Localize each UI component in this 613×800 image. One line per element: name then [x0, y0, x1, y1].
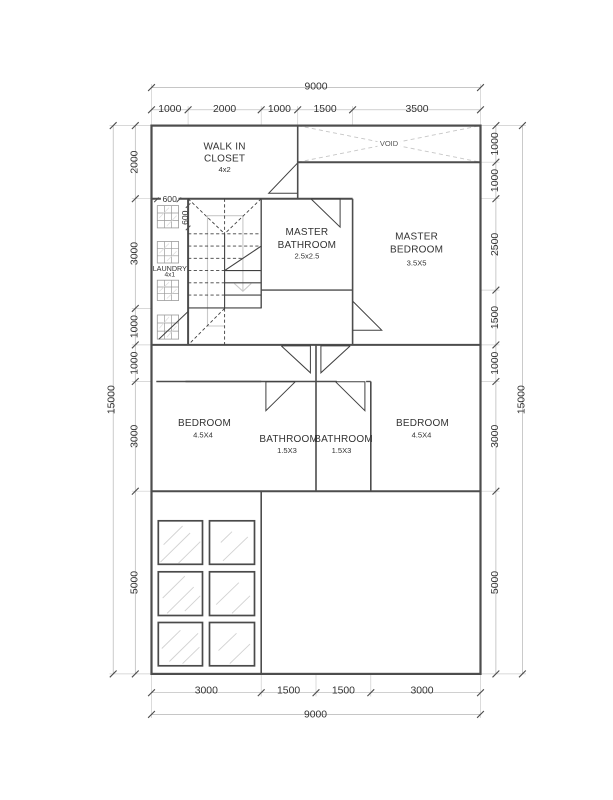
- svg-text:1.5X3: 1.5X3: [277, 446, 297, 455]
- svg-text:3000: 3000: [410, 686, 433, 697]
- svg-text:15000: 15000: [107, 385, 118, 414]
- svg-text:4.5X4: 4.5X4: [412, 431, 432, 440]
- svg-text:5000: 5000: [130, 571, 141, 594]
- svg-text:3000: 3000: [195, 686, 218, 697]
- svg-text:2000: 2000: [213, 104, 236, 115]
- svg-text:WALK IN: WALK IN: [204, 142, 246, 153]
- svg-text:1500: 1500: [314, 104, 337, 115]
- svg-text:BATHROOM: BATHROOM: [314, 434, 373, 445]
- svg-text:4x2: 4x2: [218, 165, 230, 174]
- svg-text:1000: 1000: [130, 351, 141, 374]
- svg-text:BATHROOM: BATHROOM: [278, 240, 337, 251]
- svg-text:MASTER: MASTER: [395, 231, 438, 242]
- svg-text:2.5x2.5: 2.5x2.5: [294, 252, 319, 261]
- svg-text:1000: 1000: [158, 104, 181, 115]
- svg-text:600: 600: [180, 210, 190, 225]
- svg-text:1000: 1000: [268, 104, 291, 115]
- svg-text:1000: 1000: [490, 351, 501, 374]
- svg-text:2000: 2000: [130, 150, 141, 173]
- svg-text:3500: 3500: [405, 104, 428, 115]
- svg-text:BEDROOM: BEDROOM: [396, 418, 449, 429]
- svg-text:9000: 9000: [304, 81, 327, 92]
- svg-text:BEDROOM: BEDROOM: [390, 245, 443, 256]
- svg-text:1000: 1000: [130, 315, 141, 338]
- svg-text:3000: 3000: [130, 425, 141, 448]
- svg-text:3000: 3000: [490, 425, 501, 448]
- svg-text:600: 600: [163, 194, 178, 204]
- svg-text:1500: 1500: [332, 686, 355, 697]
- svg-text:1500: 1500: [277, 686, 300, 697]
- svg-text:4.5X4: 4.5X4: [193, 431, 213, 440]
- svg-text:9000: 9000: [304, 709, 327, 720]
- svg-text:4x1: 4x1: [164, 271, 175, 278]
- svg-text:15000: 15000: [517, 385, 528, 414]
- svg-text:VOID: VOID: [380, 139, 399, 148]
- svg-text:2500: 2500: [490, 233, 501, 256]
- svg-text:3000: 3000: [130, 242, 141, 265]
- svg-text:5000: 5000: [490, 571, 501, 594]
- svg-text:3.5X5: 3.5X5: [407, 259, 427, 268]
- svg-text:BATHROOM: BATHROOM: [259, 434, 318, 445]
- svg-text:1.5X3: 1.5X3: [332, 446, 352, 455]
- svg-text:MASTER: MASTER: [285, 227, 328, 238]
- svg-text:BEDROOM: BEDROOM: [178, 418, 231, 429]
- svg-text:1000: 1000: [490, 169, 501, 192]
- svg-text:CLOSET: CLOSET: [204, 154, 245, 165]
- svg-text:1500: 1500: [490, 306, 501, 329]
- svg-text:1000: 1000: [490, 132, 501, 155]
